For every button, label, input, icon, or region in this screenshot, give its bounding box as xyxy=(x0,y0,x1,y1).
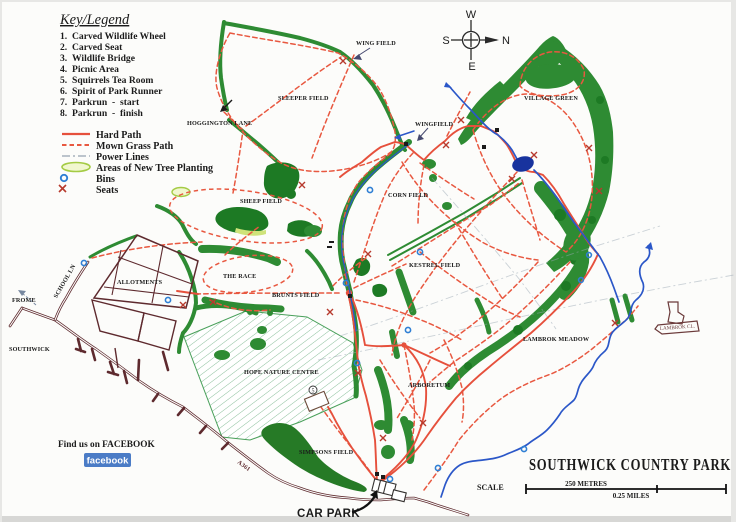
svg-text:7. Parkrun - start: 7. Parkrun - start xyxy=(60,97,140,108)
svg-text:FROME: FROME xyxy=(12,297,36,304)
svg-text:8. Parkrun - finish: 8. Parkrun - finish xyxy=(60,108,144,119)
svg-text:Areas of New Tree Planting: Areas of New Tree Planting xyxy=(96,163,213,174)
svg-text:Mown Grass Path: Mown Grass Path xyxy=(96,141,174,152)
svg-text:LAMBROK MEADOW: LAMBROK MEADOW xyxy=(523,336,590,343)
svg-text:1. Carved Wildlife Wheel: 1. Carved Wildlife Wheel xyxy=(60,31,166,42)
svg-text:ALLOTMENTS: ALLOTMENTS xyxy=(117,279,163,286)
svg-text:N: N xyxy=(502,35,510,47)
svg-text:SOUTHWICK: SOUTHWICK xyxy=(9,346,50,353)
svg-text:5: 5 xyxy=(312,389,315,395)
svg-text:4. Picnic Area: 4. Picnic Area xyxy=(60,64,119,75)
svg-text:5. Squirrels Tea Room: 5. Squirrels Tea Room xyxy=(60,75,153,86)
svg-text:CORN FIELD: CORN FIELD xyxy=(388,192,429,199)
svg-text:Power Lines: Power Lines xyxy=(96,152,149,163)
svg-text:CAR PARK: CAR PARK xyxy=(297,508,360,520)
svg-text:S: S xyxy=(442,35,449,47)
svg-text:6. Spirit of Park Runner: 6. Spirit of Park Runner xyxy=(60,86,163,97)
svg-text:3. Wildlife Bridge: 3. Wildlife Bridge xyxy=(60,53,136,64)
svg-text:ARBORETUM: ARBORETUM xyxy=(408,382,450,389)
svg-text:SIMPSONS FIELD: SIMPSONS FIELD xyxy=(299,449,354,456)
svg-text:E: E xyxy=(468,61,475,73)
svg-text:2. Carved Seat: 2. Carved Seat xyxy=(60,42,123,53)
svg-text:250 METRES: 250 METRES xyxy=(565,480,607,488)
svg-text:Bins: Bins xyxy=(96,174,115,185)
svg-text:Key/Legend: Key/Legend xyxy=(59,12,130,28)
svg-text:SOUTHWICK COUNTRY PARK: SOUTHWICK COUNTRY PARK xyxy=(529,455,731,474)
svg-text:HOGGINGTON LANE: HOGGINGTON LANE xyxy=(187,120,252,127)
svg-text:KESTREL FIELD: KESTREL FIELD xyxy=(409,262,461,269)
svg-text:SLEEPER FIELD: SLEEPER FIELD xyxy=(278,95,329,102)
svg-text:Find us on FACEBOOK: Find us on FACEBOOK xyxy=(58,440,155,450)
svg-text:facebook: facebook xyxy=(87,456,129,467)
svg-text:Seats: Seats xyxy=(96,185,118,196)
svg-text:BRUNTS FIELD: BRUNTS FIELD xyxy=(272,292,320,299)
svg-text:HOPE NATURE CENTRE: HOPE NATURE CENTRE xyxy=(244,369,319,376)
svg-text:SCALE: SCALE xyxy=(477,483,504,492)
svg-text:SHEEP FIELD: SHEEP FIELD xyxy=(240,198,282,205)
svg-text:Hard Path: Hard Path xyxy=(96,130,142,141)
svg-text:W: W xyxy=(466,9,477,21)
svg-text:VILLAGE GREEN: VILLAGE GREEN xyxy=(524,95,578,102)
svg-text:THE RACE: THE RACE xyxy=(223,273,256,280)
svg-text:WINGFIELD: WINGFIELD xyxy=(415,121,454,128)
svg-text:WING FIELD: WING FIELD xyxy=(356,40,396,47)
svg-text:0.25 MILES: 0.25 MILES xyxy=(613,492,650,500)
